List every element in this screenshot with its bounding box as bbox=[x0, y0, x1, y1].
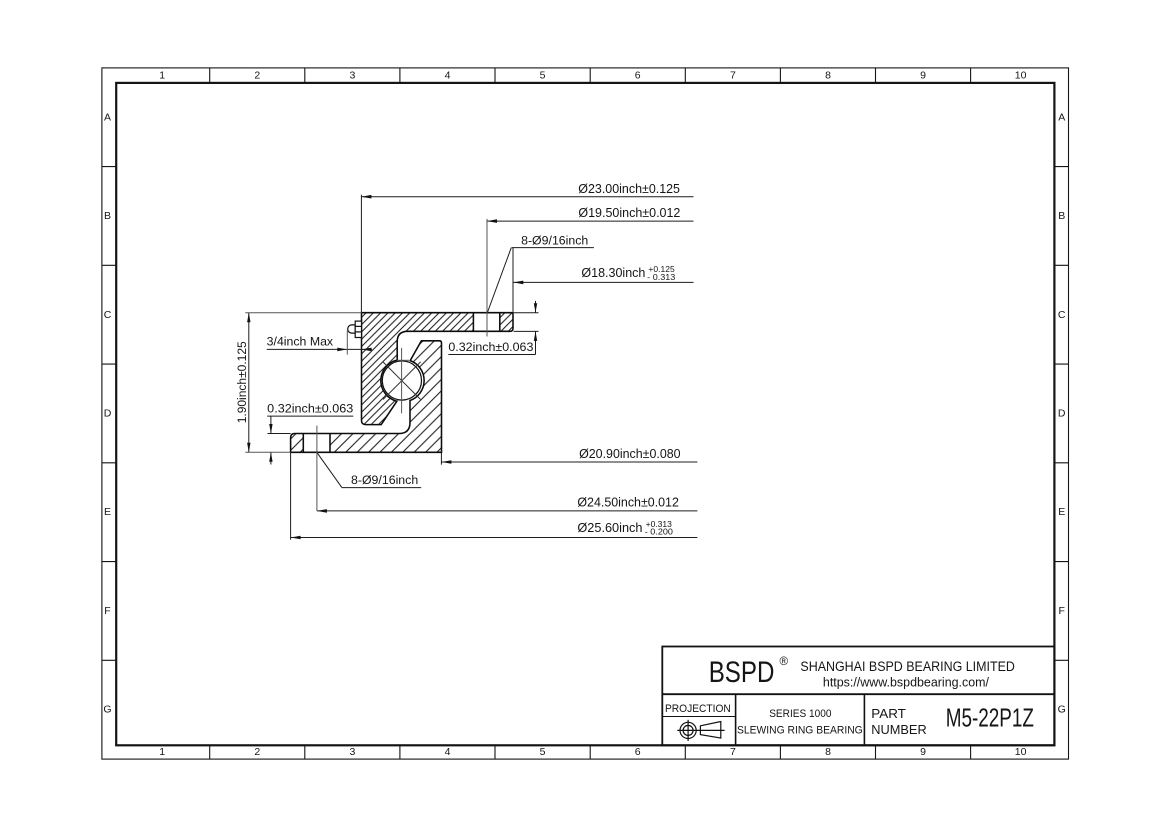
svg-text:F: F bbox=[104, 605, 110, 617]
svg-text:9: 9 bbox=[920, 746, 926, 758]
svg-text:Ø20.90inch±0.080: Ø20.90inch±0.080 bbox=[579, 446, 681, 461]
svg-text:®: ® bbox=[780, 656, 789, 668]
svg-text:D: D bbox=[1058, 408, 1066, 420]
svg-text:Ø23.00inch±0.125: Ø23.00inch±0.125 bbox=[578, 181, 680, 196]
svg-text:SLEWING RING BEARING: SLEWING RING BEARING bbox=[737, 724, 863, 736]
svg-text:B: B bbox=[1058, 210, 1065, 222]
svg-text:4: 4 bbox=[445, 746, 451, 758]
svg-text:F: F bbox=[1058, 605, 1064, 617]
svg-text:- 0.200: - 0.200 bbox=[645, 528, 674, 537]
svg-text:D: D bbox=[104, 408, 112, 420]
svg-text:https://www.bspdbearing.com/: https://www.bspdbearing.com/ bbox=[823, 675, 989, 690]
svg-text:0.32inch±0.063: 0.32inch±0.063 bbox=[448, 340, 533, 354]
svg-text:E: E bbox=[104, 506, 111, 518]
svg-text:- 0.313: - 0.313 bbox=[647, 273, 675, 282]
svg-text:PROJECTION: PROJECTION bbox=[665, 703, 731, 715]
svg-text:SERIES 1000: SERIES 1000 bbox=[769, 708, 831, 720]
svg-text:C: C bbox=[104, 309, 112, 321]
svg-text:E: E bbox=[1058, 506, 1065, 518]
svg-text:M5-22P1Z: M5-22P1Z bbox=[946, 703, 1034, 733]
svg-text:2: 2 bbox=[254, 746, 260, 758]
svg-text:8-Ø9/16inch: 8-Ø9/16inch bbox=[351, 473, 418, 487]
svg-text:B: B bbox=[104, 210, 111, 222]
svg-text:PART: PART bbox=[871, 706, 906, 721]
svg-text:10: 10 bbox=[1015, 746, 1027, 758]
svg-text:A: A bbox=[104, 111, 111, 123]
svg-text:3: 3 bbox=[349, 746, 355, 758]
svg-text:0.32inch±0.063: 0.32inch±0.063 bbox=[267, 402, 353, 416]
svg-text:6: 6 bbox=[635, 746, 641, 758]
svg-text:5: 5 bbox=[540, 70, 546, 82]
svg-text:Ø19.50inch±0.012: Ø19.50inch±0.012 bbox=[578, 205, 680, 220]
svg-text:10: 10 bbox=[1015, 70, 1027, 82]
svg-text:SHANGHAI BSPD BEARING LIMITED: SHANGHAI BSPD BEARING LIMITED bbox=[800, 659, 1015, 674]
svg-text:BSPD: BSPD bbox=[709, 656, 775, 689]
svg-text:G: G bbox=[103, 704, 111, 716]
svg-text:8-Ø9/16inch: 8-Ø9/16inch bbox=[521, 233, 588, 247]
svg-text:3/4inch Max: 3/4inch Max bbox=[267, 334, 334, 348]
svg-text:C: C bbox=[1058, 309, 1066, 321]
svg-text:3: 3 bbox=[349, 70, 355, 82]
svg-text:6: 6 bbox=[635, 70, 641, 82]
svg-text:1.90inch±0.125: 1.90inch±0.125 bbox=[235, 341, 249, 423]
svg-text:1: 1 bbox=[159, 70, 165, 82]
svg-text:G: G bbox=[1058, 704, 1066, 716]
svg-text:Ø18.30inch: Ø18.30inch bbox=[581, 265, 645, 280]
svg-text:9: 9 bbox=[920, 70, 926, 82]
svg-text:1: 1 bbox=[159, 746, 165, 758]
svg-text:NUMBER: NUMBER bbox=[871, 722, 926, 737]
svg-text:2: 2 bbox=[254, 70, 260, 82]
svg-text:8: 8 bbox=[825, 70, 831, 82]
svg-text:4: 4 bbox=[445, 70, 451, 82]
svg-text:5: 5 bbox=[540, 746, 546, 758]
svg-text:8: 8 bbox=[825, 746, 831, 758]
svg-text:A: A bbox=[1058, 111, 1065, 123]
svg-text:7: 7 bbox=[730, 746, 736, 758]
svg-text:Ø24.50inch±0.012: Ø24.50inch±0.012 bbox=[577, 494, 679, 509]
svg-text:7: 7 bbox=[730, 70, 736, 82]
svg-text:Ø25.60inch: Ø25.60inch bbox=[577, 520, 642, 535]
